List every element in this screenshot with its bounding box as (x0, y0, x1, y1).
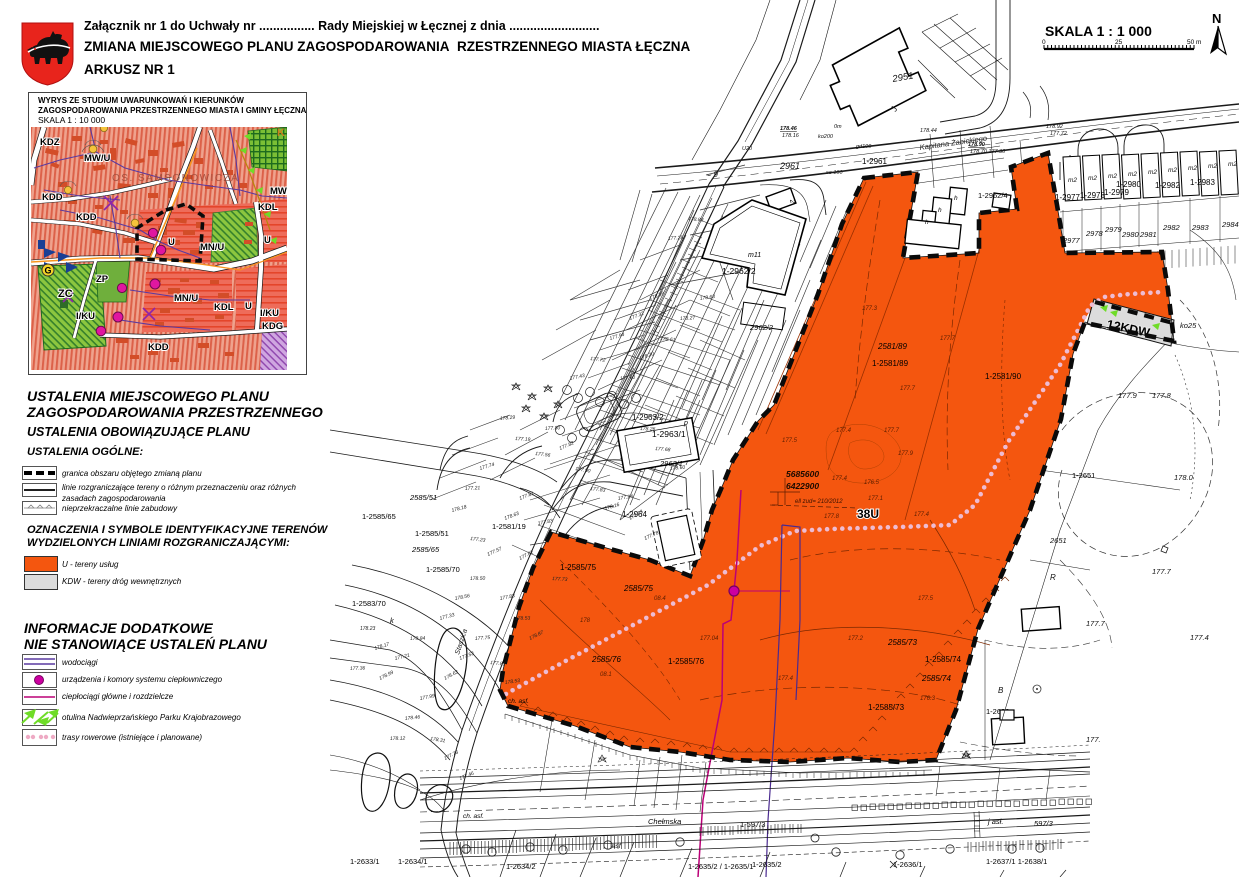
svg-text:2982: 2982 (1162, 223, 1181, 232)
svg-text:177.46: 177.46 (459, 770, 476, 781)
svg-text:1-2979: 1-2979 (1104, 188, 1129, 197)
svg-text:176.3: 176.3 (920, 696, 936, 702)
svg-text:177.57: 177.57 (486, 546, 503, 558)
svg-text:177.5: 177.5 (782, 438, 798, 444)
svg-text:177.1: 177.1 (868, 496, 883, 502)
svg-text:m2: m2 (1168, 167, 1177, 174)
svg-text:B: B (998, 686, 1004, 695)
svg-text:2581/89: 2581/89 (877, 342, 907, 351)
svg-text:1-2977: 1-2977 (1055, 193, 1080, 202)
svg-text:178.50: 178.50 (470, 576, 486, 582)
svg-text:178.63: 178.63 (699, 294, 715, 302)
svg-text:aśf: aśf (612, 843, 622, 850)
svg-text:177.83: 177.83 (499, 593, 515, 602)
svg-text:177.81: 177.81 (519, 490, 536, 501)
svg-text:1-2633/1: 1-2633/1 (350, 857, 380, 866)
svg-text:177.21: 177.21 (394, 653, 410, 662)
svg-text:178.61: 178.61 (660, 336, 676, 343)
svg-text:38U: 38U (857, 507, 879, 521)
svg-text:177.83: 177.83 (590, 486, 606, 494)
svg-text:2961: 2961 (779, 161, 800, 171)
svg-text:177.4: 177.4 (836, 428, 852, 434)
svg-text:1-2634/1: 1-2634/1 (398, 857, 428, 866)
svg-text:1-2961: 1-2961 (862, 157, 887, 166)
svg-text:m2: m2 (1228, 161, 1237, 168)
svg-text:177.56: 177.56 (535, 451, 551, 459)
svg-text:178.60: 178.60 (670, 465, 686, 472)
svg-text:08.4: 08.4 (654, 596, 666, 602)
svg-text:1-2636/1: 1-2636/1 (893, 860, 923, 869)
svg-text:m2: m2 (1188, 165, 1197, 172)
svg-text:1-2581/90: 1-2581/90 (985, 372, 1022, 381)
svg-text:2983: 2983 (1191, 223, 1210, 232)
svg-text:178.23: 178.23 (360, 626, 376, 632)
svg-text:177.80: 177.80 (545, 425, 561, 432)
svg-text:597/3: 597/3 (1034, 819, 1054, 828)
svg-text:178.88: 178.88 (688, 216, 704, 224)
svg-text:h: h (925, 219, 929, 226)
svg-text:p: p (683, 420, 688, 427)
svg-text:1-2585/70: 1-2585/70 (426, 565, 460, 574)
svg-text:2980: 2980 (1121, 230, 1140, 239)
svg-text:1-2962/4: 1-2962/4 (978, 191, 1008, 200)
svg-text:j asł.: j asł. (987, 817, 1003, 826)
svg-text:178.90: 178.90 (968, 142, 985, 148)
svg-text:1-2637/1 1-2638/1: 1-2637/1 1-2638/1 (986, 857, 1047, 866)
svg-text:178.44: 178.44 (920, 128, 937, 134)
svg-text:2981: 2981 (1139, 230, 1157, 239)
svg-text:ko25: ko25 (1180, 321, 1197, 330)
svg-text:177.73: 177.73 (552, 576, 568, 583)
svg-text:178.16: 178.16 (782, 133, 800, 139)
svg-text:177.33: 177.33 (439, 612, 456, 622)
svg-text:m2: m2 (1108, 173, 1117, 180)
svg-text:1-2585/73: 1-2585/73 (868, 703, 905, 712)
svg-text:177.: 177. (1086, 735, 1101, 744)
svg-text:178.17: 178.17 (374, 641, 391, 651)
svg-text:177.9: 177.9 (898, 451, 914, 457)
svg-text:1-2585/74: 1-2585/74 (925, 655, 962, 664)
svg-text:177.19: 177.19 (515, 436, 531, 443)
svg-text:178.63: 178.63 (443, 669, 460, 682)
svg-text:2585/65: 2585/65 (411, 545, 440, 554)
svg-text:177.7: 177.7 (1152, 567, 1172, 576)
svg-text:1-2982: 1-2982 (1155, 181, 1180, 190)
svg-text:1-2983: 1-2983 (1190, 178, 1215, 187)
svg-text:177.04: 177.04 (700, 636, 719, 642)
svg-text:177.83: 177.83 (537, 518, 553, 527)
svg-text:177.43: 177.43 (569, 373, 585, 382)
svg-text:1-2963/1: 1-2963/1 (652, 429, 686, 439)
svg-text:178.84: 178.84 (410, 636, 426, 642)
svg-text:1-2635/2: 1-2635/2 (752, 860, 782, 869)
svg-text:1-2963/2: 1-2963/2 (632, 413, 664, 422)
svg-text:178.27: 178.27 (680, 315, 696, 322)
svg-text:178.56: 178.56 (454, 593, 470, 602)
svg-text:178.63: 178.63 (504, 511, 521, 522)
svg-text:177.60: 177.60 (620, 375, 636, 382)
svg-text:1-597/3: 1-597/3 (740, 820, 765, 829)
svg-text:m2: m2 (1208, 163, 1217, 170)
svg-text:177.99: 177.99 (419, 693, 435, 702)
svg-text:178.46: 178.46 (780, 126, 798, 132)
svg-text:m11: m11 (748, 252, 761, 259)
svg-text:177.4: 177.4 (832, 476, 848, 482)
svg-text:2585/75: 2585/75 (623, 584, 653, 593)
svg-text:2979: 2979 (1104, 225, 1123, 234)
svg-text:1-2978: 1-2978 (1080, 191, 1105, 200)
svg-text:m2: m2 (1148, 169, 1157, 176)
svg-text:177.81: 177.81 (490, 660, 506, 668)
svg-text:⌣ 9: ⌣ 9 (706, 170, 718, 179)
svg-text:178.92: 178.92 (1046, 124, 1063, 130)
svg-text:177.4: 177.4 (778, 676, 794, 682)
svg-text:1-2581/19: 1-2581/19 (492, 522, 526, 531)
svg-text:k: k (390, 616, 395, 625)
svg-text:178.99: 178.99 (378, 670, 395, 682)
svg-text:R: R (1050, 573, 1056, 582)
svg-text:m2: m2 (1068, 177, 1077, 184)
svg-text:U20: U20 (742, 146, 753, 152)
svg-text:177.5: 177.5 (918, 596, 934, 602)
svg-text:177.24: 177.24 (617, 494, 633, 502)
svg-text:177.73: 177.73 (443, 749, 460, 761)
svg-text:177.75: 177.75 (475, 635, 491, 642)
svg-text:1-2980: 1-2980 (1116, 180, 1141, 189)
svg-text:177.32: 177.32 (629, 311, 646, 322)
svg-text:Chełmska: Chełmska (648, 817, 681, 826)
svg-text:ko200: ko200 (818, 134, 834, 140)
svg-text:178.53: 178.53 (515, 615, 531, 622)
svg-text:1-2583/70: 1-2583/70 (352, 599, 386, 608)
svg-text:177.8: 177.8 (824, 514, 840, 520)
svg-text:177.23: 177.23 (470, 536, 486, 544)
svg-text:2585/76: 2585/76 (591, 655, 621, 664)
svg-text:177.8: 177.8 (1152, 391, 1172, 400)
svg-text:1-2585/51: 1-2585/51 (415, 529, 449, 538)
svg-text:178.16: 178.16 (604, 502, 621, 512)
svg-text:0m: 0m (834, 124, 842, 130)
svg-text:1-2651: 1-2651 (1072, 471, 1095, 480)
svg-text:gd100: gd100 (856, 144, 872, 150)
svg-text:h: h (938, 207, 942, 214)
svg-text:176.5: 176.5 (864, 480, 880, 486)
svg-text:177.82: 177.82 (558, 440, 575, 452)
svg-text:177.90: 177.90 (575, 466, 591, 475)
svg-text:177.36: 177.36 (350, 665, 366, 672)
svg-text:2585/51: 2585/51 (409, 493, 437, 502)
svg-text:177.2: 177.2 (848, 636, 864, 642)
svg-text:178.31: 178.31 (430, 736, 446, 744)
svg-text:177.72: 177.72 (590, 356, 606, 364)
svg-text:2978: 2978 (1085, 229, 1104, 238)
svg-text:178: 178 (580, 618, 591, 624)
svg-text:ch. asf.: ch. asf. (463, 813, 484, 820)
svg-text:177.9: 177.9 (1118, 391, 1138, 400)
svg-text:177.72: 177.72 (1050, 131, 1067, 137)
svg-text:08.1: 08.1 (600, 672, 612, 678)
svg-text:177.4: 177.4 (914, 512, 930, 518)
svg-text:177.7: 177.7 (1086, 619, 1106, 628)
svg-text:1-2635/2 / 1-2635/1: 1-2635/2 / 1-2635/1 (688, 862, 753, 871)
svg-text:177.28: 177.28 (668, 235, 684, 242)
svg-text:1-2634/2: 1-2634/2 (506, 862, 536, 871)
svg-text:178.70 177.30: 178.70 177.30 (970, 149, 1006, 155)
svg-text:177.82: 177.82 (518, 549, 535, 561)
svg-text:177.94: 177.94 (609, 332, 626, 342)
svg-text:so 100: so 100 (826, 170, 843, 176)
svg-text:2585/74: 2585/74 (921, 674, 951, 683)
svg-text:ell zud= 210/2012: ell zud= 210/2012 (795, 499, 843, 505)
svg-text:1-2585/65: 1-2585/65 (362, 512, 396, 521)
svg-text:177.7: 177.7 (940, 336, 956, 342)
svg-text:178.18: 178.18 (451, 504, 468, 514)
svg-text:6422900: 6422900 (786, 481, 819, 491)
svg-text:1-2585/76: 1-2585/76 (668, 657, 705, 666)
svg-text:h: h (954, 195, 958, 202)
svg-text:177.7: 177.7 (900, 386, 916, 392)
svg-text:ch. asf.: ch. asf. (508, 698, 529, 705)
svg-text:2984: 2984 (1221, 220, 1239, 229)
svg-text:178.46: 178.46 (405, 714, 421, 722)
svg-text:177.3: 177.3 (862, 306, 878, 312)
svg-text:177.7: 177.7 (884, 428, 900, 434)
svg-text:177.4: 177.4 (1190, 633, 1209, 642)
svg-text:m2: m2 (1088, 175, 1097, 182)
svg-text:178.0: 178.0 (1174, 473, 1194, 482)
svg-text:178.12: 178.12 (390, 736, 406, 742)
svg-text:178.29: 178.29 (500, 415, 516, 422)
svg-text:178.20: 178.20 (639, 351, 656, 362)
svg-text:2962/2: 2962/2 (749, 323, 774, 332)
svg-text:178.26: 178.26 (640, 426, 656, 433)
svg-text:1-2962/2: 1-2962/2 (722, 266, 756, 276)
svg-text:m2: m2 (1128, 171, 1137, 178)
svg-text:177.21: 177.21 (465, 485, 481, 492)
svg-text:2585/73: 2585/73 (887, 638, 917, 647)
svg-text:1-2581/89: 1-2581/89 (872, 359, 909, 368)
svg-text:177.74: 177.74 (479, 462, 496, 472)
svg-text:5685600: 5685600 (786, 469, 819, 479)
svg-text:1-2585/75: 1-2585/75 (560, 563, 597, 572)
